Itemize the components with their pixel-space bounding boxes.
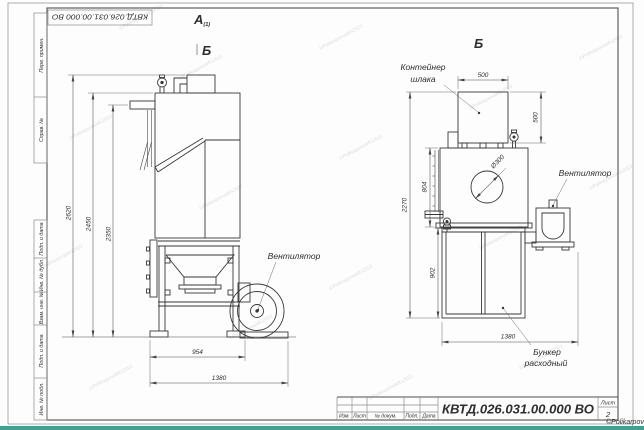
dim-1380-side-text: 1380 bbox=[501, 334, 516, 341]
dim-804-text: 804 bbox=[422, 181, 429, 192]
view-a-label: А(1) bbox=[193, 12, 210, 28]
watermark-text: ©PolikarpovaMG2021 bbox=[318, 22, 365, 51]
view-b-label-front: Б bbox=[202, 43, 211, 58]
fan-label-front: Вентилятор bbox=[268, 251, 321, 261]
titleblock-data-label: Дата bbox=[421, 414, 435, 420]
side-dim-500-height: 500 bbox=[510, 92, 546, 143]
hopper-label-line1: Бункер bbox=[533, 347, 561, 357]
front-machine-outline bbox=[130, 75, 240, 238]
side-dim-500-width: 500 bbox=[458, 72, 508, 89]
drawing-canvas: ©PolikarpovaMG2021 ©PolikarpovaMG2021 ©P… bbox=[0, 0, 644, 430]
view-a-letter: А bbox=[193, 12, 203, 27]
front-dim-1380: 1380 bbox=[150, 341, 288, 387]
sheet-number: 2 bbox=[605, 410, 611, 419]
title-block: Изм. Лист № докум. Подп. Дата КВТД.026.0… bbox=[337, 397, 618, 420]
watermark-text: ©PolikarpovaMG2021 bbox=[578, 32, 625, 61]
sheet-word: Лист bbox=[600, 401, 616, 407]
front-dim-954: 954 bbox=[150, 340, 245, 387]
bottom-accent-bar bbox=[0, 426, 644, 430]
container-label-line1: Контейнер bbox=[400, 62, 445, 72]
container-label-line2: шлака bbox=[410, 74, 436, 84]
front-view: А(1) Б bbox=[62, 12, 321, 387]
watermark-text: ©PolikarpovaMG2021 bbox=[468, 82, 515, 111]
front-side-door bbox=[147, 240, 158, 297]
left-stamp-column-bottom: Подп. и дата Инв. № дубл. Взам. инв. № П… bbox=[34, 220, 47, 420]
dim-2270-text: 2270 bbox=[402, 197, 409, 213]
hopper-label-line2: расходный bbox=[524, 358, 568, 368]
side-dim-2270: 2270 bbox=[402, 92, 457, 318]
titleblock-ndocum-label: № докум. bbox=[374, 414, 396, 420]
dim-2350-text: 2350 bbox=[106, 226, 113, 242]
doc-number: КВТД.026.031.00.000 ВО bbox=[442, 403, 594, 417]
titleblock-podp-label: Подп. bbox=[405, 414, 418, 420]
dim-500h-text: 500 bbox=[533, 112, 540, 123]
stamp-sprav-n: Справ. № bbox=[39, 118, 45, 142]
dim-d300-text: Ø300 bbox=[489, 154, 506, 171]
titleblock-list-label: Лист bbox=[352, 414, 366, 420]
stamp-inv-podl: Инв. № подл. bbox=[39, 383, 45, 416]
side-upper-body bbox=[440, 148, 528, 227]
dim-500w-text: 500 bbox=[478, 72, 489, 79]
drawing-sheet: ©PolikarpovaMG2021 ©PolikarpovaMG2021 ©P… bbox=[0, 0, 644, 430]
stamp-podp-data-1: Подп. и дата bbox=[39, 222, 45, 255]
stamp-inv-dubl: Инв. № дубл. bbox=[39, 259, 45, 292]
top-doc-number: КВТД.026.031.00.000 ВО bbox=[51, 13, 148, 20]
corner-watermark: ©PolikarpovaMG2021 bbox=[606, 418, 644, 426]
front-dim-2620: 2620 bbox=[66, 75, 186, 337]
stamp-perv-primen: Перв. примен. bbox=[39, 37, 45, 72]
view-b-label-side: Б bbox=[474, 36, 483, 51]
side-fan-callout: Вентилятор bbox=[552, 168, 612, 207]
front-dim-2450: 2450 bbox=[86, 93, 154, 337]
side-dim-1380: 1380 bbox=[442, 252, 578, 346]
dim-2620-text: 2620 bbox=[66, 205, 73, 221]
watermark-text: ©PolikarpovaMG2021 bbox=[68, 112, 115, 141]
stamp-podp-data-2: Подп. и дата bbox=[39, 334, 45, 367]
stamp-vzam-inv: Взам. инв. № bbox=[39, 291, 45, 324]
side-drain-valve bbox=[443, 218, 450, 232]
watermark-text: ©PolikarpovaMG2021 bbox=[328, 262, 375, 291]
titleblock-izm-label: Изм. bbox=[339, 414, 350, 420]
watermark-text: ©PolikarpovaMG2021 bbox=[88, 362, 135, 391]
dim-902-text: 902 bbox=[430, 267, 437, 278]
side-dim-804: 804 bbox=[422, 148, 439, 227]
side-roof-valve bbox=[510, 130, 518, 148]
left-stamp-column-top: Перв. примен. Справ. № bbox=[34, 13, 47, 163]
front-dim-2350: 2350 bbox=[106, 105, 129, 337]
dim-2450-text: 2450 bbox=[86, 216, 93, 232]
front-support-frame bbox=[150, 241, 245, 337]
front-fan-callout: Вентилятор bbox=[257, 251, 321, 311]
side-dim-d300: Ø300 bbox=[475, 154, 506, 199]
dim-1380-front-text: 1380 bbox=[212, 375, 227, 382]
side-ladder bbox=[433, 150, 439, 212]
side-bunker bbox=[436, 223, 532, 318]
view-a-subscript: (1) bbox=[203, 22, 210, 28]
fan-label-side: Вентилятор bbox=[559, 168, 612, 178]
dim-954-text: 954 bbox=[192, 349, 203, 356]
front-top-valve bbox=[158, 75, 167, 93]
watermark-text: ©PolikarpovaMG2021 bbox=[338, 132, 385, 161]
side-dim-902: 902 bbox=[430, 228, 442, 318]
front-ladder bbox=[140, 110, 152, 170]
